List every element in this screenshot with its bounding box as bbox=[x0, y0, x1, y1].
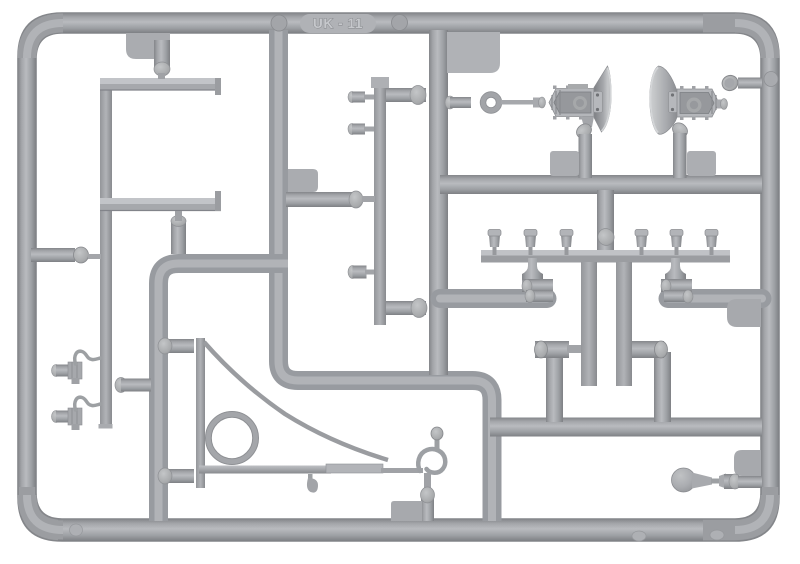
svg-text:UK - 11: UK - 11 bbox=[313, 16, 363, 31]
